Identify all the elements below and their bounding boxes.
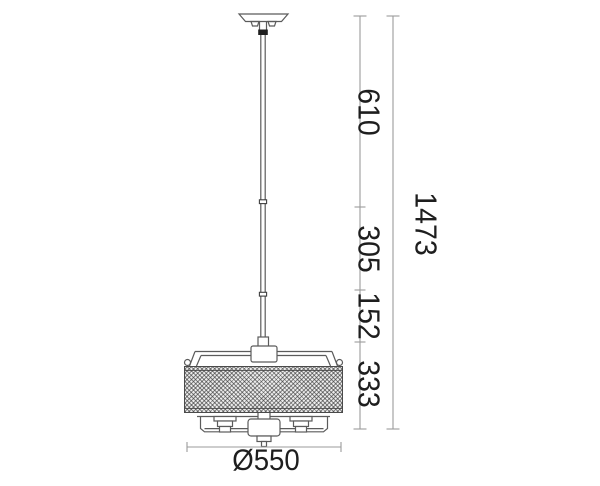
bulb-socket-right bbox=[290, 417, 312, 433]
shade-bottom-rim bbox=[185, 408, 342, 409]
canopy-screw-right bbox=[268, 22, 276, 27]
lower-frame bbox=[197, 412, 330, 447]
lamp-linework bbox=[0, 0, 600, 486]
ceiling-canopy bbox=[239, 14, 288, 35]
dim-label-610: 610 bbox=[354, 88, 385, 136]
hanging-rod bbox=[258, 35, 269, 347]
rod-joint-lower bbox=[259, 292, 266, 296]
finial bbox=[257, 436, 271, 442]
yoke-frame bbox=[185, 346, 343, 366]
dim-label-333: 333 bbox=[354, 360, 385, 408]
dimension-line-total bbox=[387, 16, 400, 429]
shade-ear-left bbox=[185, 360, 191, 366]
rod-joint-upper bbox=[259, 200, 266, 204]
dim-label-diameter-550: Ø550 bbox=[232, 446, 300, 476]
dimension-drawing: 610 305 152 333 1473 Ø550 bbox=[0, 0, 600, 486]
dim-label-1473: 1473 bbox=[411, 192, 442, 255]
drum-shade bbox=[184, 366, 343, 413]
shade-top-rim bbox=[185, 370, 342, 371]
canopy-screw-left bbox=[251, 22, 259, 27]
center-hub-lower bbox=[248, 419, 280, 436]
center-hub-upper bbox=[251, 346, 277, 362]
shade-ear-right bbox=[337, 360, 343, 366]
dim-label-152: 152 bbox=[354, 292, 385, 340]
bulb-socket-left bbox=[214, 417, 236, 433]
dim-label-305: 305 bbox=[354, 225, 385, 273]
canopy-collar bbox=[258, 30, 268, 36]
